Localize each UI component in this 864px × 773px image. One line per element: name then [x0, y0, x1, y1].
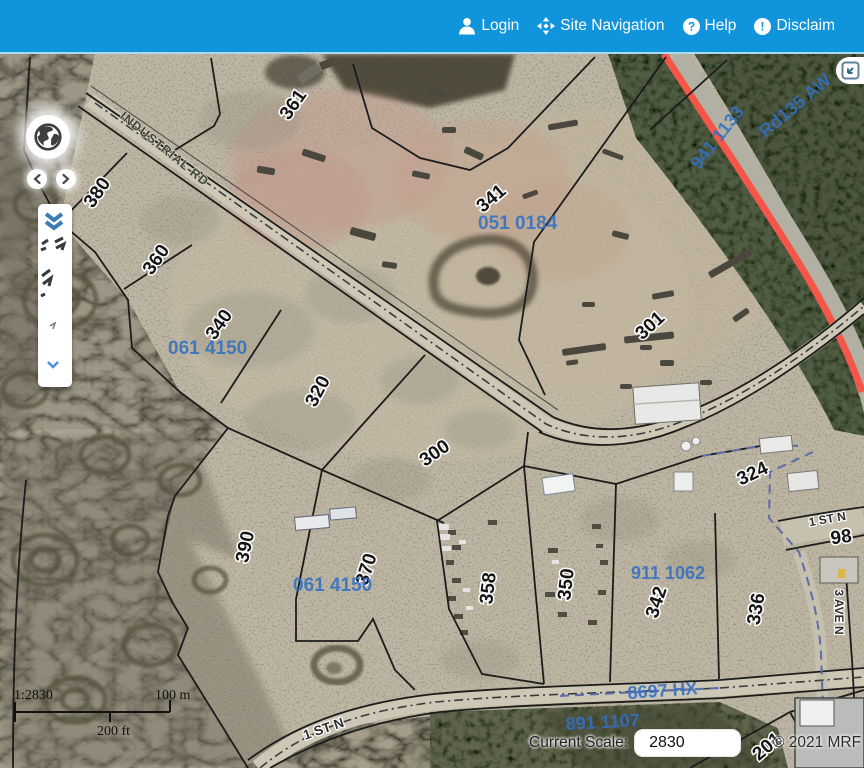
svg-text:200 ft: 200 ft — [97, 724, 130, 739]
svg-text:100 m: 100 m — [155, 688, 191, 703]
svg-text:911 1062: 911 1062 — [631, 563, 705, 583]
svg-text:061 4150: 061 4150 — [293, 575, 372, 596]
svg-text:358: 358 — [476, 571, 501, 605]
svg-text:061 4150: 061 4150 — [168, 338, 247, 359]
svg-text:350: 350 — [554, 567, 579, 601]
svg-text:98: 98 — [829, 526, 853, 550]
svg-text:!: ! — [761, 19, 765, 33]
svg-text:051 0184: 051 0184 — [478, 213, 558, 234]
svg-text:1:2830: 1:2830 — [14, 688, 53, 703]
svg-text:?: ? — [687, 19, 694, 33]
svg-text:3 AVE N: 3 AVE N — [832, 589, 846, 634]
